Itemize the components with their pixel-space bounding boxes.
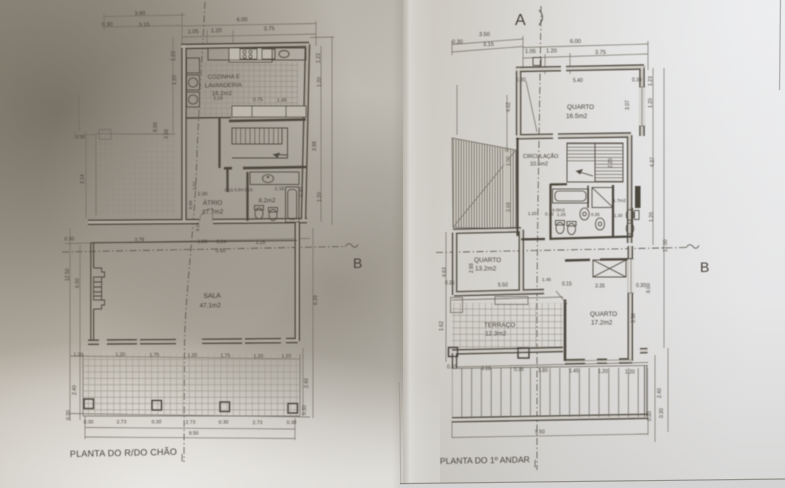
svg-text:0.15: 0.15 (545, 212, 554, 217)
svg-text:2.20: 2.20 (608, 158, 614, 168)
svg-text:0.30: 0.30 (636, 283, 646, 289)
svg-text:1.90: 1.90 (197, 239, 207, 245)
svg-text:1.05: 1.05 (188, 29, 199, 35)
svg-text:1.75: 1.75 (149, 352, 159, 358)
svg-text:3.98: 3.98 (312, 141, 318, 151)
svg-text:0.30: 0.30 (659, 408, 665, 418)
svg-text:A: A (515, 12, 526, 29)
svg-text:QUARTO: QUARTO (590, 311, 617, 318)
svg-text:ÁTRIO: ÁTRIO (203, 198, 223, 207)
svg-text:1.20: 1.20 (546, 49, 557, 55)
svg-text:3.56: 3.56 (631, 313, 637, 323)
svg-text:1.7m2: 1.7m2 (613, 198, 626, 203)
svg-text:0.30: 0.30 (302, 405, 308, 415)
svg-text:1.23: 1.23 (648, 76, 654, 86)
svg-text:1.30: 1.30 (614, 213, 623, 218)
svg-text:3.18: 3.18 (481, 366, 491, 372)
svg-text:0.24: 0.24 (216, 239, 226, 245)
svg-text:2.73: 2.73 (117, 419, 127, 425)
svg-text:1.20: 1.20 (648, 98, 654, 108)
svg-text:3.78: 3.78 (134, 237, 144, 243)
svg-text:1.23: 1.23 (316, 53, 322, 63)
svg-text:0.30: 0.30 (287, 420, 297, 426)
svg-text:3.80: 3.80 (134, 11, 145, 17)
svg-text:1.20: 1.20 (317, 192, 323, 202)
svg-text:0.30: 0.30 (64, 236, 74, 242)
svg-text:1.20: 1.20 (625, 370, 635, 376)
svg-text:1.80: 1.80 (538, 368, 548, 374)
svg-text:1.20: 1.20 (528, 211, 537, 216)
svg-text:1.20: 1.20 (211, 28, 222, 34)
svg-text:LAVANDERIA: LAVANDERIA (205, 83, 242, 90)
svg-text:4.02: 4.02 (506, 102, 512, 112)
svg-text:0.35: 0.35 (447, 365, 457, 371)
svg-text:CIRCULAÇÃO: CIRCULAÇÃO (523, 153, 558, 160)
svg-text:17.7m2: 17.7m2 (202, 209, 224, 216)
svg-text:1.45: 1.45 (569, 369, 579, 375)
svg-text:3.15: 3.15 (483, 42, 494, 48)
svg-text:1.20: 1.20 (317, 77, 323, 87)
svg-text:6.15: 6.15 (195, 222, 200, 231)
svg-text:6.2m2: 6.2m2 (259, 198, 276, 204)
svg-text:1.20: 1.20 (649, 212, 655, 222)
svg-text:0.30: 0.30 (102, 22, 113, 28)
svg-text:PLANTA DO 1º ANDAR: PLANTA DO 1º ANDAR (440, 454, 530, 466)
svg-text:4.37: 4.37 (650, 157, 656, 167)
svg-text:1.20: 1.20 (172, 75, 178, 85)
svg-text:2.16: 2.16 (275, 186, 285, 192)
svg-text:17.2m2: 17.2m2 (591, 320, 613, 327)
svg-text:0.86: 0.86 (188, 200, 193, 209)
svg-text:0.30: 0.30 (299, 187, 305, 197)
svg-text:0.30: 0.30 (516, 78, 526, 84)
svg-text:3.68: 3.68 (506, 202, 512, 212)
svg-text:TERRAÇO: TERRAÇO (484, 322, 515, 329)
svg-text:6.00: 6.00 (75, 278, 81, 288)
svg-text:6.00: 6.00 (570, 39, 581, 45)
svg-text:0.30: 0.30 (84, 419, 94, 425)
svg-text:COZINHA E: COZINHA E (208, 74, 240, 81)
svg-text:2.73: 2.73 (253, 420, 263, 426)
svg-text:0.30: 0.30 (647, 411, 653, 421)
svg-text:13.2m2: 13.2m2 (475, 266, 497, 273)
svg-text:1.20: 1.20 (115, 352, 125, 358)
svg-text:3.14: 3.14 (80, 174, 86, 184)
svg-text:6.00: 6.00 (237, 17, 248, 23)
svg-text:6.39: 6.39 (313, 295, 319, 305)
svg-text:2.40: 2.40 (657, 388, 663, 398)
svg-text:9.50: 9.50 (535, 430, 545, 436)
svg-text:1.45: 1.45 (277, 97, 287, 103)
svg-text:12.50: 12.50 (65, 268, 71, 281)
svg-text:0.30: 0.30 (632, 78, 642, 84)
svg-text:3.75: 3.75 (595, 50, 606, 56)
svg-text:0.75: 0.75 (253, 97, 263, 103)
svg-text:1.20: 1.20 (187, 353, 197, 359)
svg-text:SALA: SALA (203, 293, 221, 300)
svg-text:0.30: 0.30 (66, 410, 72, 420)
svg-text:B: B (700, 259, 709, 275)
svg-text:3.50: 3.50 (479, 32, 490, 38)
svg-text:0.30: 0.30 (452, 40, 463, 46)
svg-text:2.40: 2.40 (72, 385, 78, 395)
svg-text:9.50: 9.50 (189, 431, 199, 437)
svg-text:1.23: 1.23 (171, 51, 177, 61)
svg-text:B: B (353, 255, 362, 271)
svg-text:1.20: 1.20 (73, 352, 83, 358)
svg-text:0.35: 0.35 (514, 367, 524, 373)
svg-text:1.25: 1.25 (557, 212, 566, 217)
svg-text:2.40: 2.40 (304, 378, 310, 388)
svg-text:3.18: 3.18 (213, 96, 223, 102)
svg-text:4.63: 4.63 (442, 267, 448, 277)
svg-text:0.30: 0.30 (152, 419, 162, 425)
svg-text:0.15 0.84 0.15: 0.15 0.84 0.15 (225, 187, 254, 192)
svg-text:3.75: 3.75 (264, 26, 275, 32)
svg-text:1.20: 1.20 (281, 353, 291, 359)
svg-text:5.50: 5.50 (498, 283, 508, 289)
svg-text:0.30: 0.30 (219, 420, 229, 426)
svg-text:16.5m2: 16.5m2 (566, 113, 588, 120)
svg-text:3.35: 3.35 (595, 284, 605, 290)
svg-text:QUARTO: QUARTO (474, 257, 501, 264)
svg-text:|: | (534, 458, 536, 468)
svg-text:5.40: 5.40 (573, 78, 583, 84)
svg-text:8.00: 8.00 (153, 122, 159, 132)
svg-text:1.00: 1.00 (506, 156, 512, 166)
svg-text:2.00: 2.00 (198, 191, 208, 197)
svg-text:17.00: 17.00 (663, 239, 669, 252)
svg-text:12.3m2: 12.3m2 (485, 331, 507, 338)
svg-text:|: | (181, 452, 183, 462)
svg-text:10.5m2: 10.5m2 (530, 162, 548, 168)
svg-text:3.07: 3.07 (625, 100, 631, 110)
svg-text:3.15: 3.15 (139, 22, 150, 28)
svg-text:QUARTO: QUARTO (567, 104, 594, 111)
svg-text:0.35: 0.35 (591, 212, 600, 217)
svg-text:0.30: 0.30 (76, 135, 85, 140)
svg-text:0.55: 0.55 (216, 248, 226, 254)
svg-text:1.20: 1.20 (253, 353, 263, 359)
svg-text:0.35: 0.35 (445, 281, 455, 287)
svg-text:1.20: 1.20 (598, 369, 608, 375)
svg-text:1.05: 1.05 (525, 49, 536, 55)
svg-text:1.62: 1.62 (439, 321, 445, 331)
svg-text:3.25: 3.25 (255, 240, 265, 246)
svg-text:0.15: 0.15 (562, 282, 572, 288)
svg-text:1.57: 1.57 (192, 181, 197, 190)
svg-text:47.1m2: 47.1m2 (200, 302, 222, 309)
svg-text:2.88: 2.88 (469, 263, 475, 273)
svg-text:2.73: 2.73 (186, 420, 196, 426)
svg-text:1.45: 1.45 (542, 277, 551, 282)
svg-text:6.00: 6.00 (646, 283, 652, 293)
svg-text:3.58: 3.58 (164, 129, 170, 139)
svg-text:1.75: 1.75 (220, 353, 230, 359)
